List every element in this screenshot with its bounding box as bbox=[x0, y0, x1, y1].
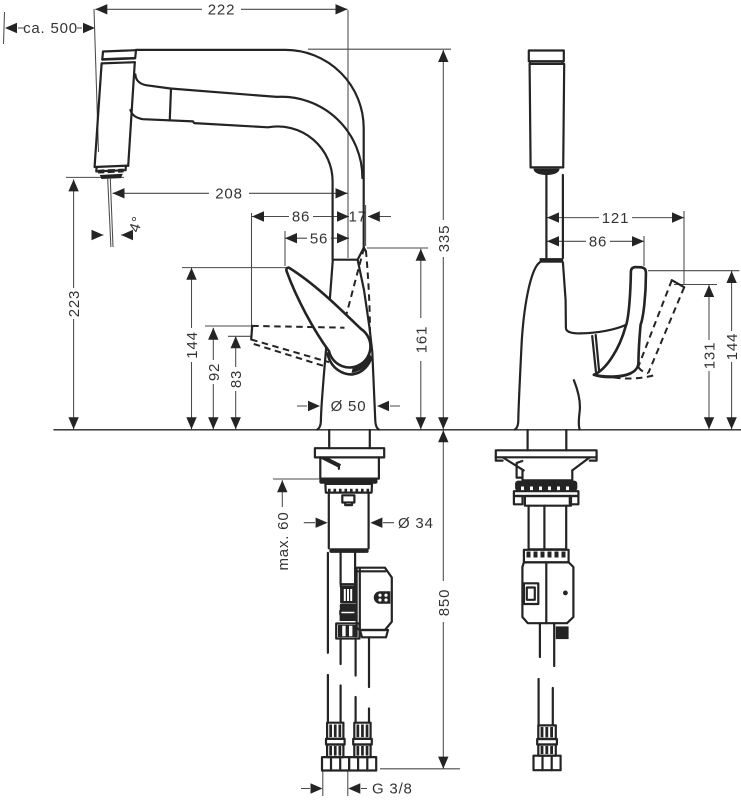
svg-text:56: 56 bbox=[310, 230, 328, 247]
svg-text:223: 223 bbox=[66, 290, 83, 317]
svg-text:850: 850 bbox=[436, 589, 453, 616]
svg-text:121: 121 bbox=[602, 210, 629, 227]
svg-text:131: 131 bbox=[702, 342, 719, 369]
svg-text:144: 144 bbox=[724, 333, 741, 360]
svg-text:G 3/8: G 3/8 bbox=[372, 781, 413, 798]
svg-text:222: 222 bbox=[208, 2, 235, 19]
svg-text:92: 92 bbox=[206, 363, 223, 381]
svg-text:208: 208 bbox=[215, 186, 242, 203]
svg-text:max. 60: max. 60 bbox=[275, 512, 292, 571]
svg-text:86: 86 bbox=[589, 234, 607, 251]
svg-text:86: 86 bbox=[292, 209, 310, 226]
svg-text:83: 83 bbox=[228, 370, 245, 388]
svg-text:335: 335 bbox=[436, 225, 453, 252]
svg-text:Ø 34: Ø 34 bbox=[398, 515, 434, 532]
svg-text:144: 144 bbox=[184, 331, 201, 358]
svg-text:ca. 500: ca. 500 bbox=[23, 20, 78, 37]
svg-text:Ø 50: Ø 50 bbox=[331, 398, 367, 415]
svg-text:161: 161 bbox=[413, 326, 430, 353]
